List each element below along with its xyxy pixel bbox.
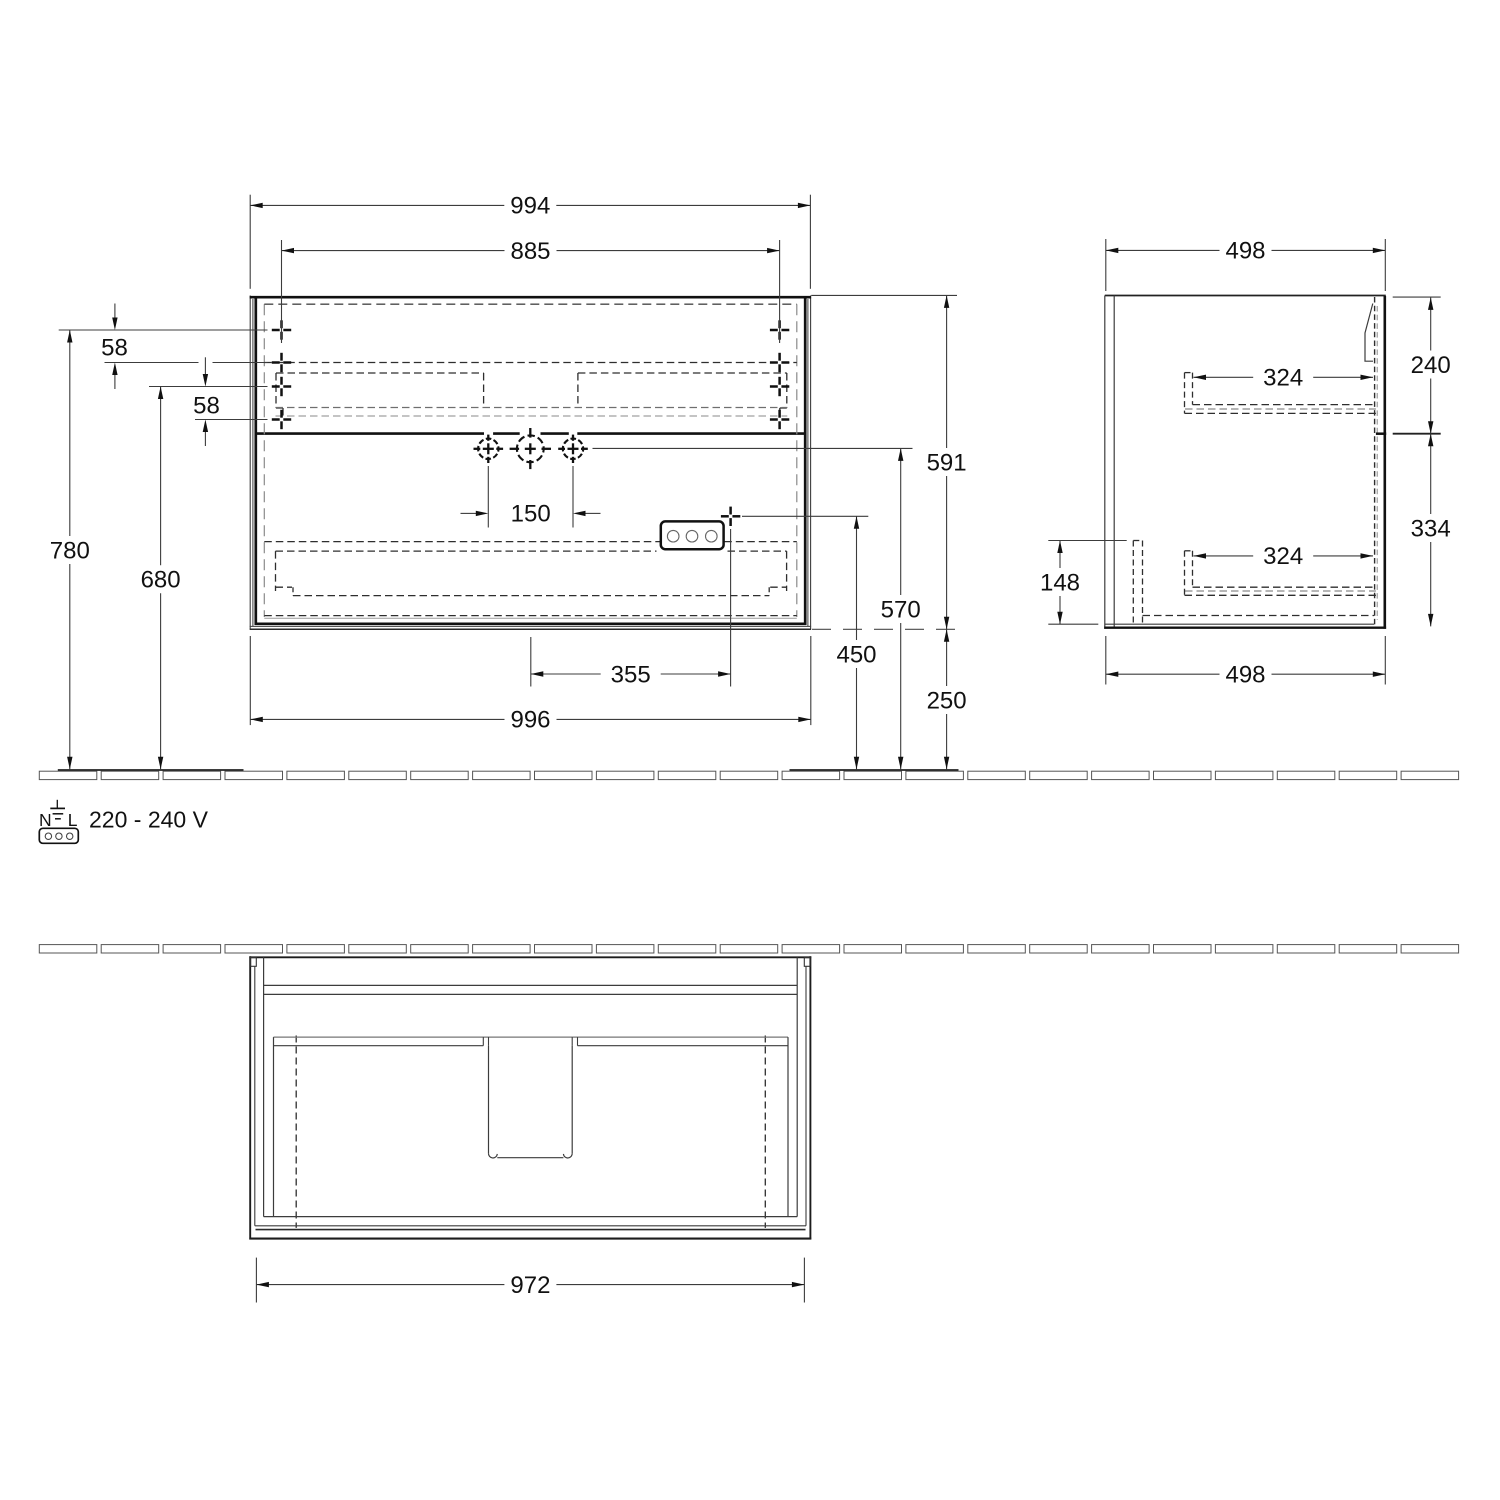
- svg-text:250: 250: [927, 687, 967, 714]
- svg-text:972: 972: [510, 1272, 550, 1299]
- svg-text:885: 885: [510, 238, 550, 265]
- svg-text:498: 498: [1225, 238, 1265, 265]
- svg-text:355: 355: [611, 661, 651, 688]
- svg-text:324: 324: [1263, 365, 1303, 392]
- svg-text:L: L: [68, 810, 78, 830]
- svg-text:498: 498: [1225, 662, 1265, 689]
- svg-text:150: 150: [511, 501, 551, 528]
- svg-text:996: 996: [510, 707, 550, 734]
- svg-text:450: 450: [836, 641, 876, 668]
- svg-text:680: 680: [141, 567, 181, 594]
- svg-text:780: 780: [50, 537, 90, 564]
- svg-text:324: 324: [1263, 543, 1303, 570]
- svg-text:220 - 240 V: 220 - 240 V: [89, 806, 209, 832]
- svg-text:240: 240: [1411, 352, 1451, 379]
- svg-text:N: N: [39, 810, 52, 830]
- svg-text:334: 334: [1411, 515, 1451, 542]
- svg-text:58: 58: [101, 334, 128, 361]
- svg-text:570: 570: [881, 596, 921, 623]
- svg-text:148: 148: [1040, 569, 1080, 596]
- svg-text:591: 591: [927, 449, 967, 476]
- svg-text:994: 994: [510, 193, 550, 220]
- svg-text:58: 58: [193, 393, 220, 420]
